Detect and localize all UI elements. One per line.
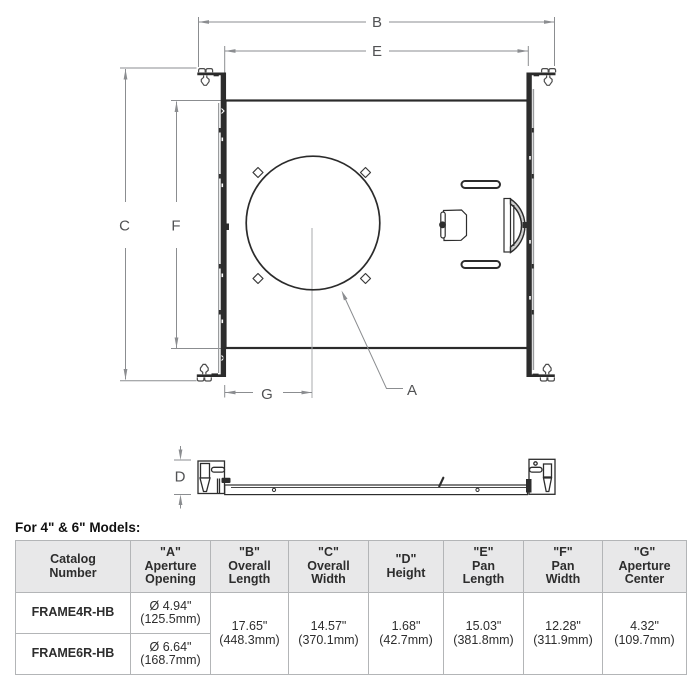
svg-text:C: C	[119, 218, 130, 235]
svg-text:G: G	[261, 386, 273, 403]
svg-text:F: F	[171, 218, 180, 235]
svg-text:A: A	[407, 382, 417, 399]
svg-text:D: D	[175, 469, 186, 486]
svg-text:E: E	[372, 43, 382, 60]
svg-text:B: B	[372, 14, 382, 31]
